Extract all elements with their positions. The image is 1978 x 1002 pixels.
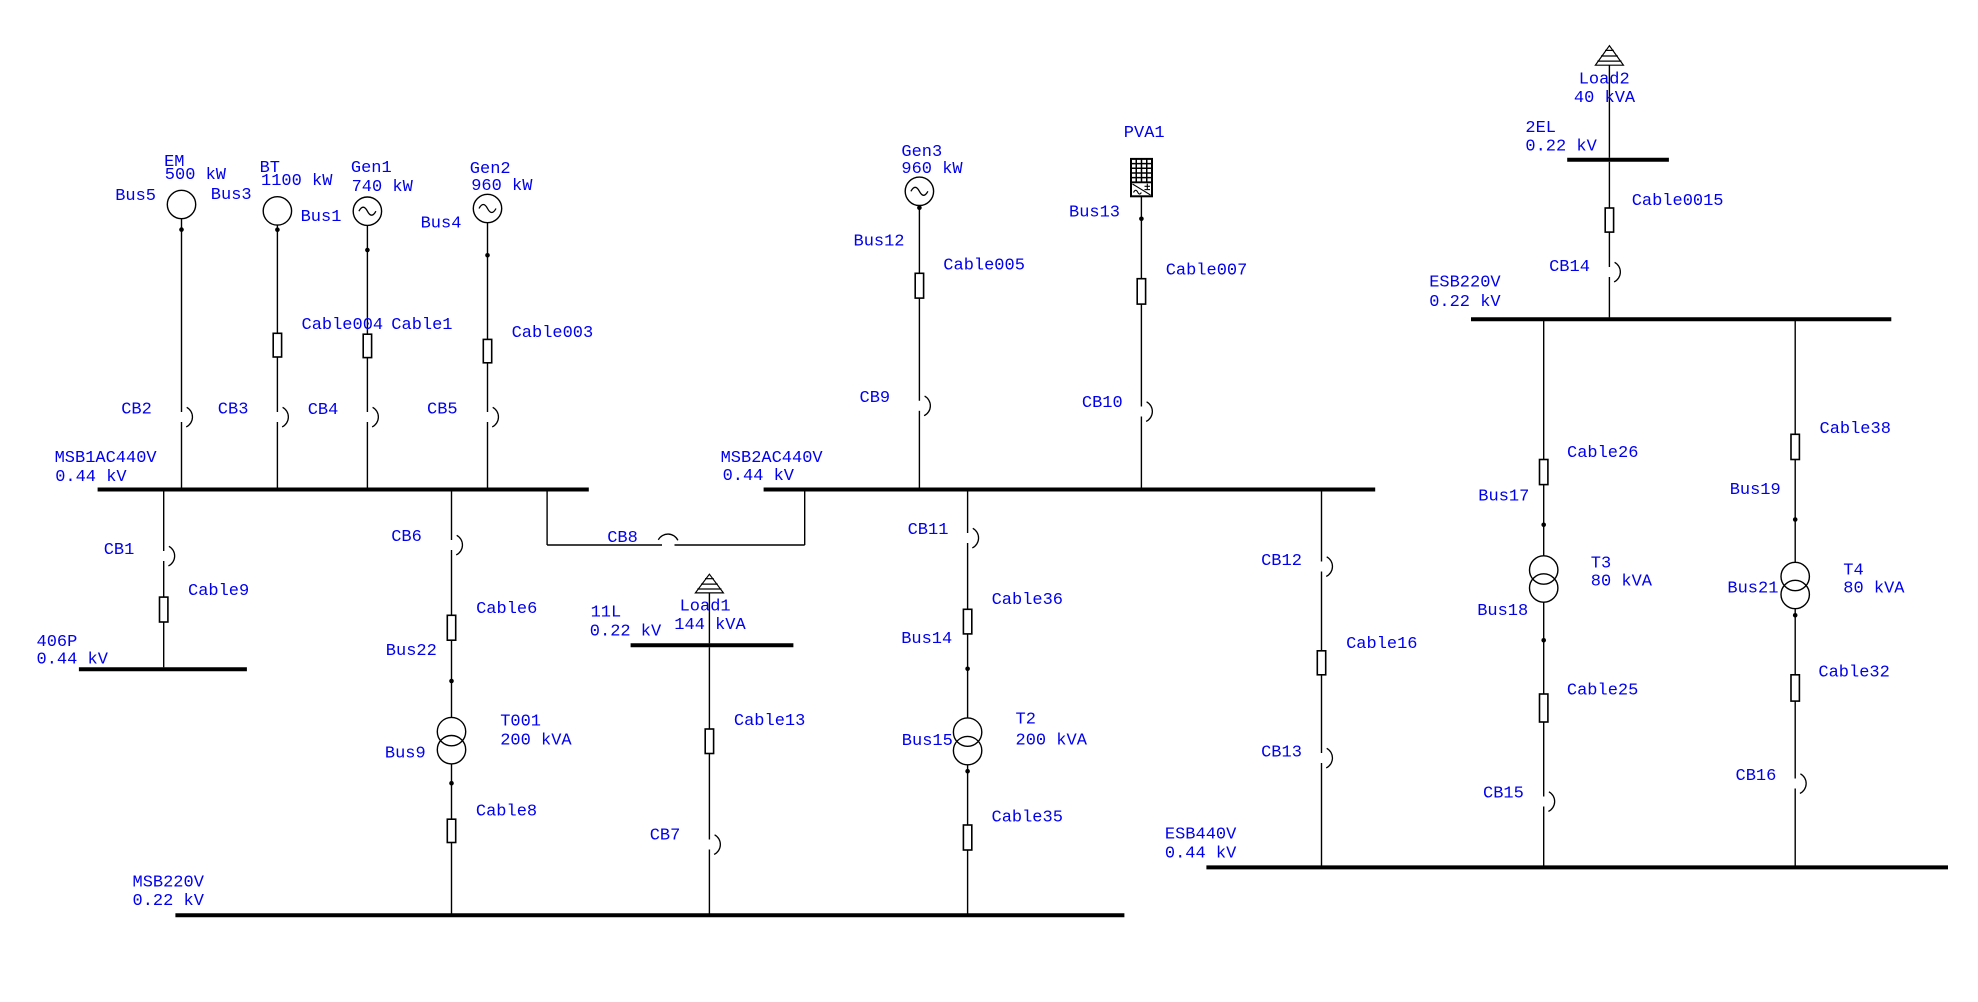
svg-text:MSB1AC440V: MSB1AC440V bbox=[55, 449, 158, 468]
svg-text:740 kW: 740 kW bbox=[352, 178, 414, 197]
svg-text:Bus1: Bus1 bbox=[301, 208, 342, 227]
svg-text:CB12: CB12 bbox=[1261, 552, 1302, 571]
svg-text:0.22 kV: 0.22 kV bbox=[1525, 138, 1597, 157]
svg-text:Bus17: Bus17 bbox=[1478, 488, 1529, 507]
svg-text:CB5: CB5 bbox=[427, 401, 458, 420]
svg-text:Bus18: Bus18 bbox=[1477, 602, 1528, 621]
svg-text:Bus13: Bus13 bbox=[1069, 203, 1120, 222]
svg-text:144 kVA: 144 kVA bbox=[674, 616, 746, 635]
svg-text:Cable26: Cable26 bbox=[1567, 444, 1638, 463]
svg-text:1100 kW: 1100 kW bbox=[261, 172, 333, 191]
svg-text:0.44 kV: 0.44 kV bbox=[55, 468, 127, 487]
svg-text:CB15: CB15 bbox=[1483, 785, 1524, 804]
svg-text:Bus22: Bus22 bbox=[386, 642, 437, 661]
svg-text:0.44 kV: 0.44 kV bbox=[37, 651, 109, 670]
svg-text:ESB440V: ESB440V bbox=[1165, 826, 1237, 845]
svg-text:Bus21: Bus21 bbox=[1727, 580, 1778, 599]
svg-text:CB10: CB10 bbox=[1082, 394, 1123, 413]
svg-text:CB2: CB2 bbox=[121, 401, 152, 420]
svg-text:Gen1: Gen1 bbox=[351, 159, 392, 178]
svg-text:0.44 kV: 0.44 kV bbox=[723, 467, 795, 486]
svg-text:Cable25: Cable25 bbox=[1567, 681, 1638, 700]
svg-text:Cable13: Cable13 bbox=[734, 712, 805, 731]
svg-text:Load2: Load2 bbox=[1579, 70, 1630, 89]
svg-text:960 kW: 960 kW bbox=[471, 177, 533, 196]
svg-text:Cable004: Cable004 bbox=[302, 316, 384, 335]
svg-text:CB4: CB4 bbox=[308, 401, 339, 420]
svg-text:2EL: 2EL bbox=[1525, 119, 1556, 138]
svg-text:Bus3: Bus3 bbox=[211, 186, 252, 205]
svg-text:500 kW: 500 kW bbox=[165, 166, 227, 185]
svg-text:0.22 kV: 0.22 kV bbox=[133, 892, 205, 911]
svg-text:Cable38: Cable38 bbox=[1820, 420, 1891, 439]
svg-text:Bus5: Bus5 bbox=[115, 187, 156, 206]
svg-text:200 kVA: 200 kVA bbox=[500, 732, 572, 751]
svg-text:200 kVA: 200 kVA bbox=[1016, 732, 1088, 751]
svg-text:MSB220V: MSB220V bbox=[133, 874, 205, 893]
svg-text:406P: 406P bbox=[37, 633, 78, 652]
svg-text:Load1: Load1 bbox=[680, 598, 731, 617]
svg-text:960 kW: 960 kW bbox=[901, 160, 963, 179]
svg-text:T3: T3 bbox=[1591, 555, 1611, 574]
svg-text:CB3: CB3 bbox=[218, 401, 249, 420]
svg-text:CB11: CB11 bbox=[908, 521, 949, 540]
svg-text:Bus9: Bus9 bbox=[385, 745, 426, 764]
svg-text:Cable0015: Cable0015 bbox=[1632, 192, 1724, 211]
svg-text:40 kVA: 40 kVA bbox=[1574, 89, 1636, 108]
svg-text:Cable35: Cable35 bbox=[992, 809, 1063, 828]
svg-text:Cable007: Cable007 bbox=[1166, 261, 1248, 280]
svg-text:CB9: CB9 bbox=[860, 389, 891, 408]
svg-text:CB1: CB1 bbox=[104, 541, 135, 560]
svg-text:Cable9: Cable9 bbox=[188, 582, 249, 601]
svg-text:CB6: CB6 bbox=[391, 528, 422, 547]
svg-text:Bus19: Bus19 bbox=[1730, 481, 1781, 500]
svg-text:Cable36: Cable36 bbox=[992, 591, 1063, 610]
svg-text:PVA1: PVA1 bbox=[1124, 124, 1165, 143]
svg-text:Cable1: Cable1 bbox=[391, 316, 452, 335]
svg-text:Bus4: Bus4 bbox=[421, 215, 462, 234]
svg-text:11L: 11L bbox=[591, 604, 622, 623]
svg-text:CB14: CB14 bbox=[1549, 258, 1590, 277]
svg-text:T2: T2 bbox=[1016, 711, 1036, 730]
svg-text:Bus12: Bus12 bbox=[854, 232, 905, 251]
svg-text:Cable32: Cable32 bbox=[1818, 664, 1889, 683]
svg-text:ESB220V: ESB220V bbox=[1429, 274, 1501, 293]
svg-text:CB16: CB16 bbox=[1736, 767, 1777, 786]
svg-text:Cable8: Cable8 bbox=[476, 803, 537, 822]
svg-text:0.22 kV: 0.22 kV bbox=[590, 623, 662, 642]
svg-text:80 kVA: 80 kVA bbox=[1843, 580, 1905, 599]
svg-text:CB13: CB13 bbox=[1261, 744, 1302, 763]
svg-text:T001: T001 bbox=[500, 713, 541, 732]
svg-text:Cable16: Cable16 bbox=[1346, 635, 1417, 654]
svg-text:CB8: CB8 bbox=[607, 529, 638, 548]
svg-text:Bus14: Bus14 bbox=[901, 630, 952, 649]
svg-text:Bus15: Bus15 bbox=[902, 732, 953, 751]
svg-text:Cable005: Cable005 bbox=[943, 256, 1025, 275]
svg-text:CB7: CB7 bbox=[650, 827, 681, 846]
svg-text:0.44 kV: 0.44 kV bbox=[1165, 845, 1237, 864]
svg-text:80 kVA: 80 kVA bbox=[1591, 573, 1653, 592]
svg-text:MSB2AC440V: MSB2AC440V bbox=[721, 449, 824, 468]
svg-text:0.22 kV: 0.22 kV bbox=[1429, 293, 1501, 312]
svg-text:T4: T4 bbox=[1843, 562, 1863, 581]
svg-text:Cable003: Cable003 bbox=[512, 324, 594, 343]
svg-text:Cable6: Cable6 bbox=[476, 600, 537, 619]
